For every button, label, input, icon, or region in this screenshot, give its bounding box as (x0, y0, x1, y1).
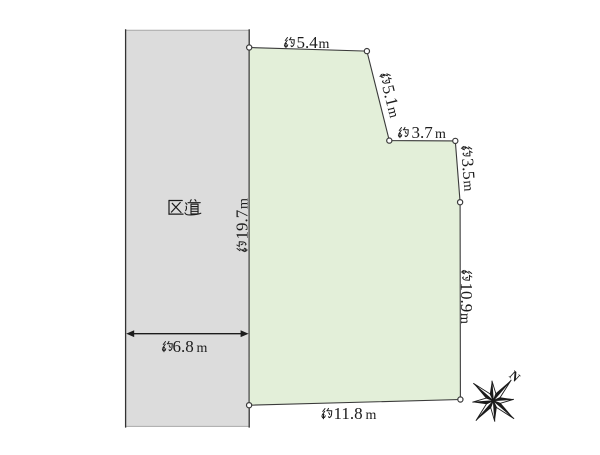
svg-text:m: m (435, 127, 446, 142)
svg-text:m: m (366, 408, 377, 423)
svg-text:19.7: 19.7 (233, 209, 252, 239)
svg-text:m: m (460, 180, 476, 192)
svg-text:m: m (237, 198, 252, 209)
svg-text:m: m (319, 37, 330, 52)
svg-text:6.8: 6.8 (173, 337, 194, 356)
svg-text:5.4: 5.4 (297, 33, 319, 52)
svg-text:11.8: 11.8 (334, 404, 363, 423)
svg-text:10.9: 10.9 (457, 283, 476, 313)
svg-text:3.5: 3.5 (458, 158, 479, 181)
svg-text:3.7: 3.7 (412, 123, 434, 142)
svg-text:m: m (457, 313, 472, 324)
svg-text:m: m (197, 341, 208, 356)
